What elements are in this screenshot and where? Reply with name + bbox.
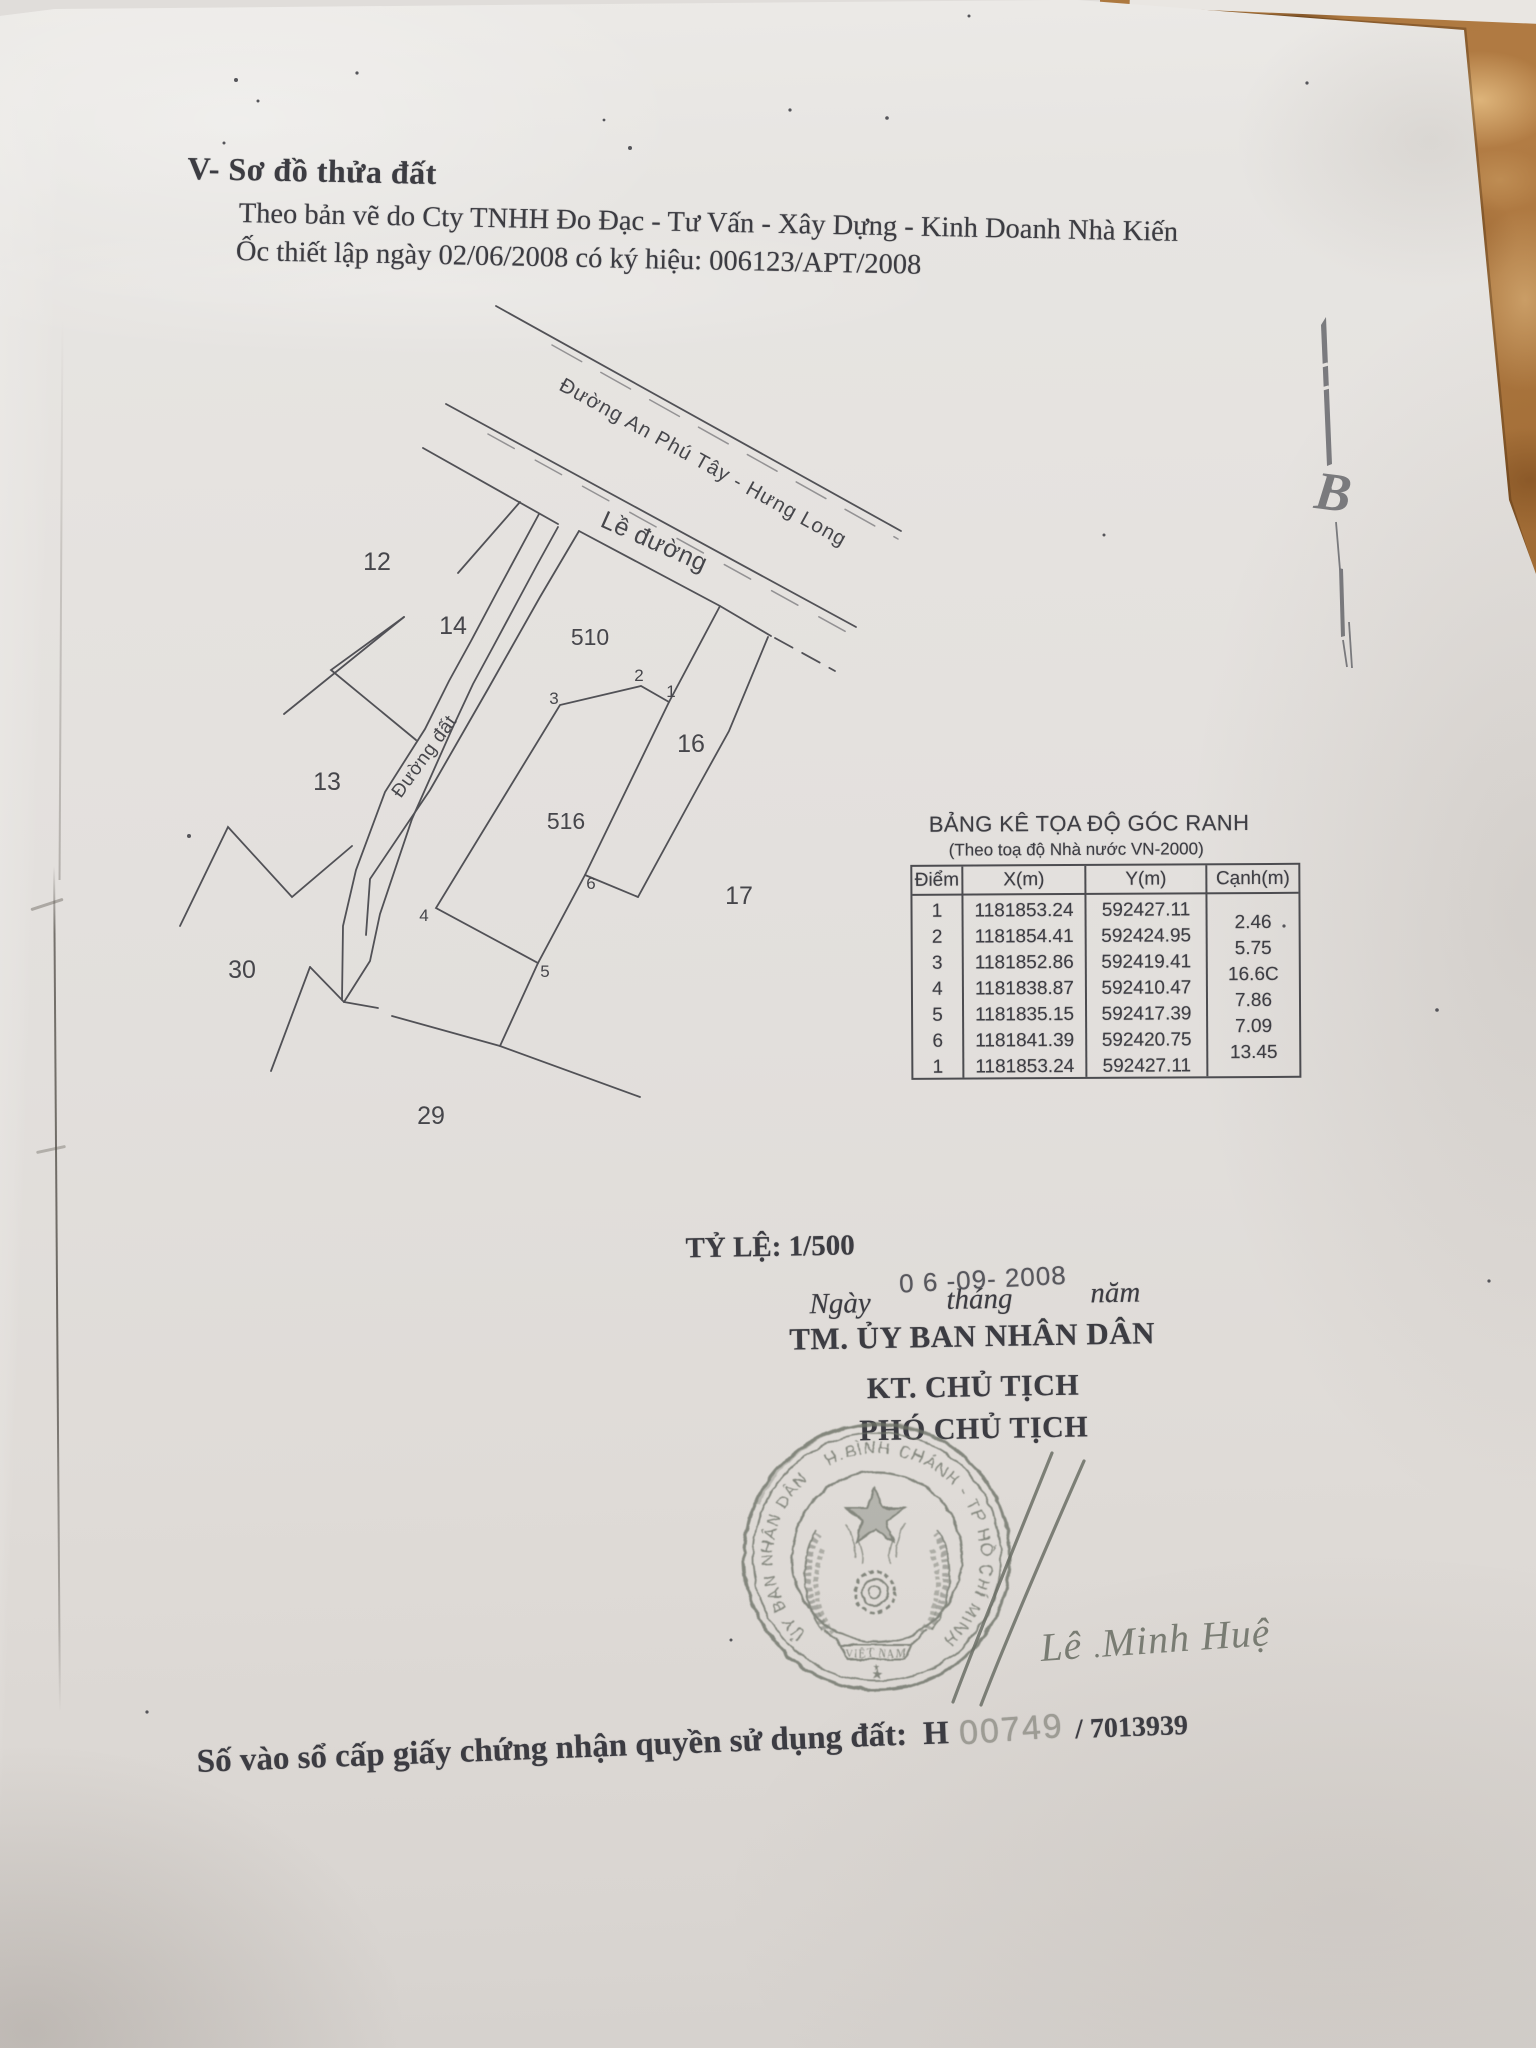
svg-text:14: 14 (439, 612, 467, 640)
svg-text:VIỆT NAM: VIỆT NAM (845, 1648, 906, 1660)
svg-text:510: 510 (571, 624, 609, 650)
svg-text:6: 6 (586, 874, 595, 893)
svg-text:ỦY BAN NHÂN DÂN: ỦY BAN NHÂN DÂN (759, 1469, 812, 1644)
svg-text:4: 4 (419, 906, 428, 925)
svg-text:17: 17 (725, 882, 753, 910)
svg-text:H.BÌNH CHÁNH - TP HỒ CHÍ MINH: H.BÌNH CHÁNH - TP HỒ CHÍ MINH (822, 1439, 996, 1649)
svg-text:12: 12 (363, 548, 391, 576)
svg-text:13: 13 (313, 768, 341, 796)
svg-text:30: 30 (228, 956, 256, 984)
svg-text:3: 3 (549, 689, 558, 708)
svg-text:1: 1 (666, 682, 675, 701)
svg-text:16: 16 (677, 730, 705, 758)
svg-text:★: ★ (872, 1663, 880, 1673)
svg-text:B: B (1311, 460, 1355, 524)
svg-text:516: 516 (547, 808, 585, 834)
svg-text:29: 29 (417, 1102, 445, 1130)
svg-text:5: 5 (540, 962, 549, 981)
svg-text:2: 2 (634, 666, 643, 685)
